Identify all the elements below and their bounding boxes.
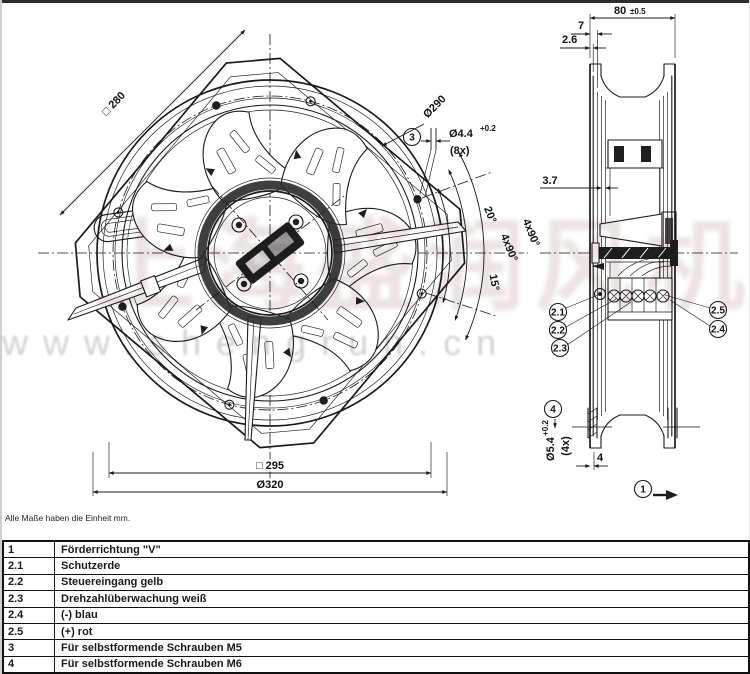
- legend-row: 1 Förderrichtung "V": [4, 542, 748, 557]
- dim-label-20deg: 20°: [481, 205, 498, 225]
- drawing-page: □ 280 Ø290 3 Ø4.4 +0.2 (8x): [0, 0, 750, 674]
- front-view: □ 280 Ø290 3 Ø4.4 +0.2 (8x): [38, 30, 542, 496]
- dim-label-square-280: □ 280: [100, 90, 128, 119]
- legend-id: 4: [4, 658, 54, 670]
- dim-label-4x: (4x): [560, 436, 572, 456]
- dim-flange-hole: 4 Ø5.4 +0.2 (4x): [541, 401, 572, 461]
- legend-row: 2.2 Steuereingang gelb: [4, 574, 748, 590]
- dim-angles: 20° 4x90° 4x90° 15°: [422, 153, 542, 341]
- terminal-block: [595, 258, 673, 320]
- dim-hole-4-4: 3 Ø4.4 +0.2 (8x): [404, 124, 497, 197]
- callout-3: 3: [409, 133, 415, 144]
- legend-text: (+) rot: [54, 624, 748, 639]
- legend-text: Drehzahlüberwachung weiß: [54, 591, 748, 606]
- legend-id: 2.3: [4, 593, 54, 605]
- legend-row: 2.1 Schutzerde: [4, 557, 748, 573]
- legend-row: 2.4 (-) blau: [4, 607, 748, 623]
- dim-bolt-circle-290: Ø290: [382, 93, 449, 146]
- legend-table: 1 Förderrichtung "V" 2.1 Schutzerde 2.2 …: [2, 540, 750, 674]
- fan-technical-drawing: □ 280 Ø290 3 Ø4.4 +0.2 (8x): [0, 0, 750, 536]
- callout-4: 4: [550, 405, 556, 416]
- dim-label-4: 4: [597, 452, 604, 464]
- dim-depth-80: 80 ±0.5: [590, 5, 675, 58]
- dim-4: 4: [576, 452, 608, 470]
- dim-label-4x90-a: 4x90°: [520, 217, 542, 248]
- legend-row: 3 Für selbstformende Schrauben M5: [4, 639, 748, 655]
- dim-label-hole-tol: +0.2: [480, 124, 496, 133]
- callout-2-1: 2.1: [551, 308, 565, 319]
- dim-label-15deg: 15°: [487, 273, 502, 291]
- legend-id: 2.1: [4, 560, 54, 572]
- dim-label-7: 7: [578, 20, 584, 32]
- motor-section: [592, 140, 678, 278]
- dim-label-2-6: 2.6: [562, 34, 577, 46]
- dim-label-square-295: □ 295: [256, 460, 284, 472]
- legend-text: Für selbstformende Schrauben M5: [54, 640, 748, 655]
- units-note: Alle Maße haben die Einheit mm.: [5, 513, 130, 523]
- dim-label-3-7: 3.7: [542, 175, 557, 187]
- legend-id: 3: [4, 642, 54, 654]
- dim-label-80-tol: ±0.5: [630, 7, 646, 16]
- dim-label-80: 80: [614, 5, 626, 17]
- legend-text: (-) blau: [54, 608, 748, 623]
- dim-label-5-4-tol: +0.2: [541, 420, 550, 436]
- dim-3-7: 3.7: [540, 175, 618, 188]
- callout-2-2: 2.2: [551, 326, 565, 337]
- callout-2-4: 2.4: [711, 325, 725, 336]
- legend-id: 2.5: [4, 626, 54, 638]
- lead-wires: [618, 258, 672, 276]
- legend-text: Schutzerde: [54, 558, 748, 573]
- legend-id: 2.2: [4, 576, 54, 588]
- dim-label-290: Ø290: [421, 93, 449, 121]
- callout-2-5: 2.5: [711, 306, 725, 317]
- dim-label-4x90-b: 4x90°: [498, 232, 520, 263]
- airflow-direction: 1: [635, 481, 679, 501]
- dim-label-5-4: Ø5.4: [545, 436, 557, 461]
- legend-text: Für selbstformende Schrauben M6: [54, 657, 748, 672]
- legend-text: Steuereingang gelb: [54, 575, 748, 590]
- legend-id: 1: [4, 544, 54, 556]
- dim-label-dia-320: Ø320: [257, 479, 284, 491]
- legend-row: 2.3 Drehzahlüberwachung weiß: [4, 590, 748, 606]
- dim-7: 7: [571, 20, 612, 88]
- dim-2-6: 2.6: [560, 34, 606, 72]
- callout-1: 1: [640, 485, 646, 496]
- side-view: 80 ±0.5 7 2.6 3.7: [540, 5, 738, 500]
- flange-holes: [572, 408, 700, 438]
- legend-id: 2.4: [4, 609, 54, 621]
- vent-arrow: [592, 263, 604, 270]
- airflow-arrow-icon: [666, 490, 678, 500]
- dim-label-hole-dia: Ø4.4: [449, 128, 474, 140]
- blade-section: [600, 214, 662, 246]
- legend-row: 2.5 (+) rot: [4, 623, 748, 639]
- legend-text: Förderrichtung "V": [54, 542, 748, 557]
- legend-row: 4 Für selbstformende Schrauben M6: [4, 656, 748, 672]
- callout-2-3: 2.3: [553, 344, 567, 355]
